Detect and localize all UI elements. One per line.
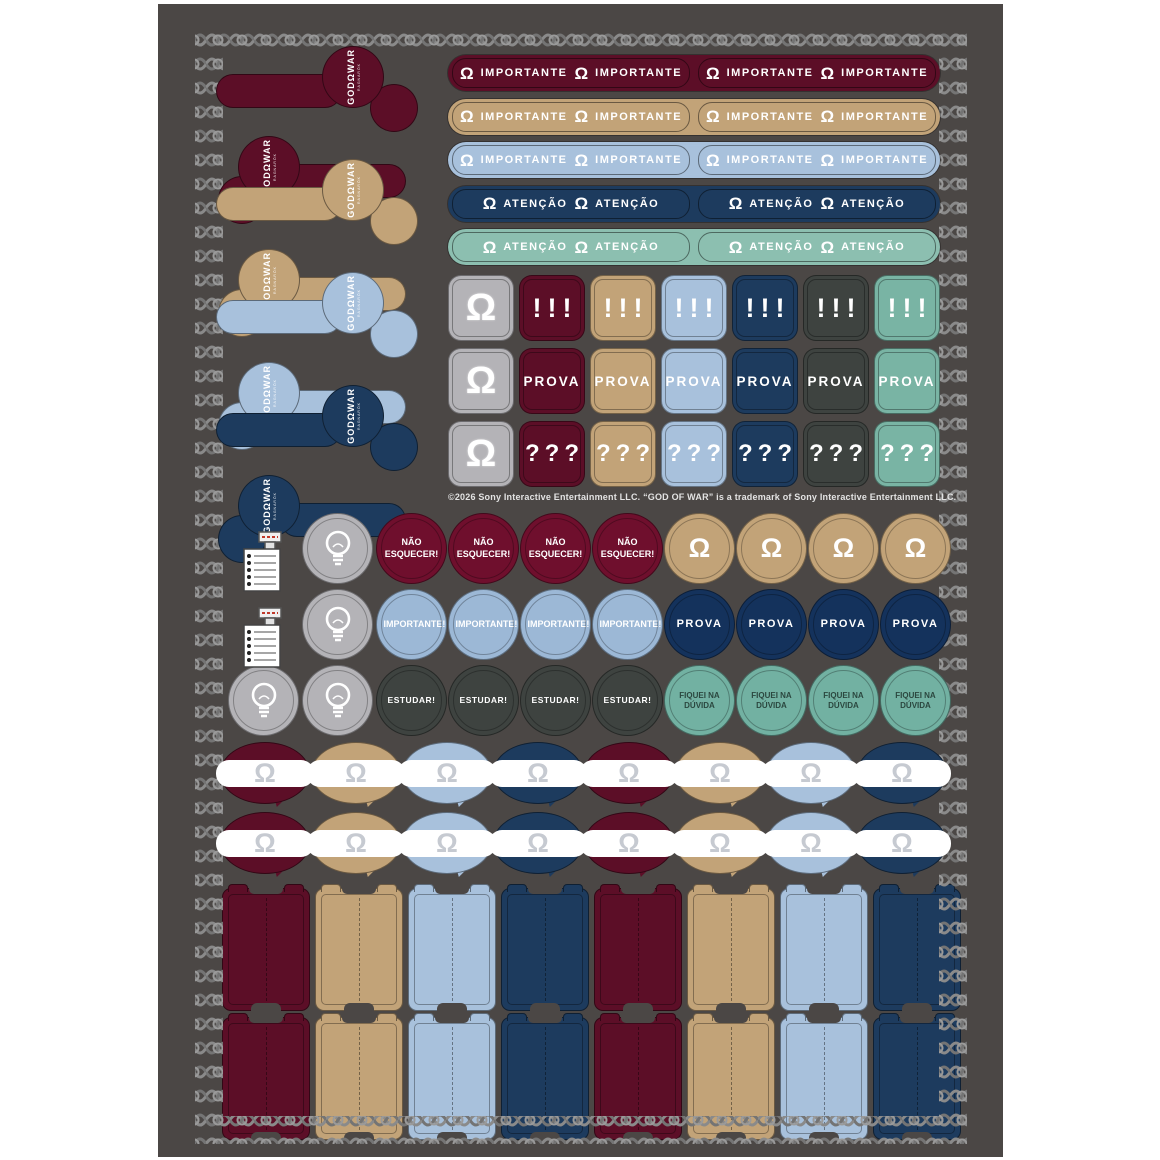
label-text: ATENÇÃO: [749, 241, 813, 253]
card-corner-tab: [377, 1013, 397, 1021]
round-sticker-importante: IMPORTANTE!: [448, 589, 519, 660]
round-sticker-label: NÃO ESQUECER!: [528, 537, 584, 560]
round-sticker-fiquei-na-duvida: FIQUEI NA DÚVIDA: [808, 665, 879, 736]
cover-card-sticker-dark_blue: [873, 1017, 961, 1140]
card-corner-tab: [470, 884, 490, 892]
card-corner-tab: [321, 1013, 341, 1021]
card-corner-tab: [842, 884, 862, 892]
speech-bubble-sticker-light_blue: Ω: [766, 812, 856, 874]
round-sticker-nao-esquecer: NÃO ESQUECER!: [376, 513, 447, 584]
bookmark-head-circle: GODΩWARRAGNARÖK: [322, 159, 384, 221]
round-sticker-nao-esquecer: NÃO ESQUECER!: [520, 513, 591, 584]
square-label: !!!: [882, 293, 933, 324]
card-corner-tab: [470, 1013, 490, 1021]
card-top-notch: [807, 888, 841, 894]
card-corner-tab: [228, 1013, 248, 1021]
card-bottom-notch: [251, 1132, 281, 1140]
speech-bubble-sticker-tan: Ω: [311, 812, 401, 874]
bookmark-head-circle: GODΩWARRAGNARÖK: [322, 385, 384, 447]
label-text: IMPORTANTE: [727, 111, 814, 123]
omega-watermark-icon: Ω: [527, 760, 549, 787]
omega-icon: Ω: [821, 65, 835, 82]
god-of-war-logo: GODΩWARRAGNARÖK: [346, 49, 361, 105]
round-sticker-label: FIQUEI NA DÚVIDA: [677, 691, 723, 711]
label-text: IMPORTANTE: [481, 154, 568, 166]
speech-bubble-sticker-light_blue: Ω: [402, 742, 492, 804]
square-label: PROVA: [523, 374, 580, 389]
omega-watermark-icon: Ω: [254, 830, 276, 857]
speech-bubble-sticker-maroon: Ω: [220, 812, 310, 874]
card-corner-tab: [414, 1013, 434, 1021]
label-strip-row-importante-maroon: ΩIMPORTANTEΩIMPORTANTEΩIMPORTANTEΩIMPORT…: [448, 55, 940, 91]
round-sticker-label: FIQUEI NA DÚVIDA: [821, 691, 867, 711]
cover-card-row: [222, 888, 961, 1011]
round-sticker-label: NÃO ESQUECER!: [384, 537, 440, 560]
card-corner-tab: [507, 1013, 527, 1021]
card-top-notch: [900, 1017, 934, 1023]
round-sticker-omega: Ω: [736, 513, 807, 584]
speech-bubble-sticker-tan: Ω: [675, 742, 765, 804]
label-text: IMPORTANTE: [595, 154, 682, 166]
round-sticker-prova: PROVA: [664, 589, 735, 660]
square-label: ???: [591, 440, 655, 468]
square-label: PROVA: [878, 374, 935, 389]
omega-square-sticker: Ω: [448, 348, 514, 414]
square-sticker-omega: ???: [874, 421, 940, 487]
copyright-line: ©2026 Sony Interactive Entertainment LLC…: [448, 492, 940, 502]
card-bottom-notch: [437, 1132, 467, 1140]
cover-card-sticker-light_blue: [408, 888, 496, 1011]
label-pill-atencao: ΩATENÇÃOΩATENÇÃO: [452, 189, 690, 219]
speech-bubble-sticker-tan: Ω: [311, 742, 401, 804]
speech-bubble-white-band: Ω: [489, 830, 587, 857]
square-label: PROVA: [736, 374, 793, 389]
speech-bubble-sticker-maroon: Ω: [584, 812, 674, 874]
speech-bubble-white-band: Ω: [580, 830, 678, 857]
card-corner-tab: [600, 884, 620, 892]
round-sticker-label: ESTUDAR!: [532, 695, 580, 706]
cover-card-sticker-tan: [687, 888, 775, 1011]
card-corner-tab: [414, 884, 434, 892]
ragnarok-logo-text: RAGNARÖK: [357, 402, 361, 430]
round-sticker-importante: IMPORTANTE!: [376, 589, 447, 660]
lightbulb-round-sticker: [228, 665, 299, 736]
god-of-war-logo-text: GODΩWAR: [346, 275, 356, 331]
speech-bubble-white-band: Ω: [580, 760, 678, 787]
square-sticker-prova: PROVA: [803, 348, 869, 414]
card-bottom-notch: [623, 1003, 653, 1011]
speech-bubble-white-band: Ω: [671, 760, 769, 787]
label-text: ATENÇÃO: [841, 241, 905, 253]
label-text: ATENÇÃO: [595, 241, 659, 253]
square-label: PROVA: [665, 374, 722, 389]
checklist-clip-icon: [242, 531, 296, 593]
square-label: !!!: [527, 293, 578, 324]
square-sticker-omega: ???: [803, 421, 869, 487]
bookmark-head-circle: GODΩWARRAGNARÖK: [238, 475, 300, 537]
speech-bubble-white-band: Ω: [853, 830, 951, 857]
card-corner-tab: [879, 1013, 899, 1021]
square-label: !!!: [598, 293, 649, 324]
square-sticker-prova: PROVA: [661, 348, 727, 414]
square-label: !!!: [811, 293, 862, 324]
card-corner-tab: [693, 884, 713, 892]
omega-watermark-icon: Ω: [436, 760, 458, 787]
label-pill-importante: ΩIMPORTANTEΩIMPORTANTE: [698, 102, 936, 132]
card-bottom-notch: [902, 1132, 932, 1140]
card-bottom-notch: [902, 1003, 932, 1011]
speech-bubble-sticker-light_blue: Ω: [402, 812, 492, 874]
omega-icon: Ω: [706, 152, 720, 169]
cover-card-sticker-maroon: [594, 888, 682, 1011]
square-sticker-omega: !!!: [732, 275, 798, 341]
god-of-war-logo: GODΩWARRAGNARÖK: [346, 388, 361, 444]
sticker-sheet: GODΩWARRAGNARÖKGODΩWARRAGNARÖKGODΩWARRAG…: [158, 4, 1003, 1157]
card-bottom-notch: [716, 1003, 746, 1011]
label-pill-importante: ΩIMPORTANTEΩIMPORTANTE: [452, 102, 690, 132]
square-label: ???: [662, 440, 726, 468]
round-sticker-label: PROVA: [749, 618, 795, 632]
lightbulb-round-sticker: [302, 589, 373, 660]
omega-watermark-icon: Ω: [709, 830, 731, 857]
label-text: ATENÇÃO: [503, 198, 567, 210]
ragnarok-logo-text: RAGNARÖK: [357, 63, 361, 91]
square-label: ???: [733, 440, 797, 468]
speech-bubble-white-band: Ω: [216, 830, 314, 857]
round-sticker-fiquei-na-duvida: FIQUEI NA DÚVIDA: [880, 665, 951, 736]
card-top-notch: [249, 888, 283, 894]
round-sticker-estudar: ESTUDAR!: [592, 665, 663, 736]
god-of-war-logo-text: GODΩWAR: [346, 388, 356, 444]
omega-icon: Ω: [466, 287, 496, 330]
square-sticker-prova: PROVA: [590, 348, 656, 414]
card-corner-tab: [656, 1013, 676, 1021]
omega-icon: Ω: [575, 152, 589, 169]
card-top-notch: [528, 1017, 562, 1023]
omega-watermark-icon: Ω: [254, 760, 276, 787]
cover-card-sticker-dark_blue: [501, 1017, 589, 1140]
card-top-notch: [621, 1017, 655, 1023]
square-sticker-prova: PROVA: [732, 348, 798, 414]
omega-icon: Ω: [729, 195, 743, 212]
lightbulb-icon: [319, 604, 357, 646]
cover-card-sticker-light_blue: [780, 888, 868, 1011]
card-bottom-notch: [437, 1003, 467, 1011]
square-sticker-prova: PROVA: [519, 348, 585, 414]
cover-card-sticker-dark_blue: [501, 888, 589, 1011]
speech-bubble-sticker-light_blue: Ω: [766, 742, 856, 804]
square-label: ???: [520, 440, 584, 468]
god-of-war-logo: GODΩWARRAGNARÖK: [346, 275, 361, 331]
speech-bubble-white-band: Ω: [398, 830, 496, 857]
speech-bubble-white-band: Ω: [853, 760, 951, 787]
omega-icon: Ω: [460, 65, 474, 82]
speech-bubble-sticker-dark_blue: Ω: [857, 812, 947, 874]
omega-watermark-icon: Ω: [345, 760, 367, 787]
card-top-notch: [528, 888, 562, 894]
symbol-square-stickers-grid: Ω!!!!!!!!!!!!!!!!!!ΩPROVAPROVAPROVAPROVA…: [448, 275, 940, 487]
omega-icon: Ω: [466, 433, 496, 476]
square-sticker-omega: ???: [519, 421, 585, 487]
omega-icon: Ω: [575, 65, 589, 82]
cover-card-sticker-maroon: [594, 1017, 682, 1140]
speech-bubble-white-band: Ω: [307, 830, 405, 857]
round-sticker-label: IMPORTANTE!: [528, 619, 584, 630]
card-top-notch: [621, 888, 655, 894]
square-label: ???: [804, 440, 868, 468]
lightbulb-icon: [319, 680, 357, 722]
checklist-clip-icon: [242, 607, 296, 669]
round-sticker-label: IMPORTANTE!: [384, 619, 440, 630]
square-sticker-prova: PROVA: [874, 348, 940, 414]
label-text: ATENÇÃO: [595, 198, 659, 210]
label-text: IMPORTANTE: [841, 154, 928, 166]
cover-card-sticker-maroon: [222, 888, 310, 1011]
square-sticker-omega: ???: [732, 421, 798, 487]
label-strip-row-importante-light_blue: ΩIMPORTANTEΩIMPORTANTEΩIMPORTANTEΩIMPORT…: [448, 142, 940, 178]
speech-bubble-white-band: Ω: [762, 760, 860, 787]
omega-icon: Ω: [706, 65, 720, 82]
label-text: IMPORTANTE: [841, 111, 928, 123]
omega-icon: Ω: [761, 533, 783, 564]
speech-bubble-sticker-tan: Ω: [675, 812, 765, 874]
speech-bubble-sticker-dark_blue: Ω: [857, 742, 947, 804]
square-sticker-omega: ???: [661, 421, 727, 487]
round-sticker-fiquei-na-duvida: FIQUEI NA DÚVIDA: [664, 665, 735, 736]
round-sticker-label: IMPORTANTE!: [600, 619, 656, 630]
round-sticker-label: ESTUDAR!: [388, 695, 436, 706]
label-pill-importante: ΩIMPORTANTEΩIMPORTANTE: [452, 58, 690, 88]
card-top-notch: [249, 1017, 283, 1023]
checklist-note-icon: [242, 607, 296, 674]
round-sticker-fiquei-na-duvida: FIQUEI NA DÚVIDA: [736, 665, 807, 736]
cover-card-row: [222, 1017, 961, 1140]
omega-watermark-icon: Ω: [709, 760, 731, 787]
square-label: PROVA: [594, 374, 651, 389]
round-sticker-label: NÃO ESQUECER!: [456, 537, 512, 560]
round-sticker-label: FIQUEI NA DÚVIDA: [893, 691, 939, 711]
round-sticker-prova: PROVA: [880, 589, 951, 660]
card-top-notch: [342, 888, 376, 894]
omega-watermark-icon: Ω: [800, 760, 822, 787]
round-sticker-omega: Ω: [664, 513, 735, 584]
label-text: IMPORTANTE: [481, 67, 568, 79]
ragnarok-logo-text: RAGNARÖK: [357, 176, 361, 204]
card-corner-tab: [600, 1013, 620, 1021]
card-top-notch: [807, 1017, 841, 1023]
card-bottom-notch: [623, 1132, 653, 1140]
card-corner-tab: [228, 884, 248, 892]
cover-card-stickers-area: [222, 888, 961, 1140]
cover-card-sticker-light_blue: [780, 1017, 868, 1140]
label-pill-atencao: ΩATENÇÃOΩATENÇÃO: [452, 232, 690, 262]
omega-watermark-icon: Ω: [800, 830, 822, 857]
speech-bubble-white-band: Ω: [398, 760, 496, 787]
square-sticker-omega: !!!: [661, 275, 727, 341]
lightbulb-icon: [245, 680, 283, 722]
omega-icon: Ω: [821, 108, 835, 125]
omega-icon: Ω: [821, 195, 835, 212]
card-top-notch: [714, 1017, 748, 1023]
card-bottom-notch: [809, 1003, 839, 1011]
square-sticker-omega: !!!: [803, 275, 869, 341]
label-text: IMPORTANTE: [727, 154, 814, 166]
speech-bubble-sticker-maroon: Ω: [220, 742, 310, 804]
square-label: !!!: [740, 293, 791, 324]
omega-icon: Ω: [575, 195, 589, 212]
omega-watermark-icon: Ω: [618, 830, 640, 857]
cover-card-sticker-maroon: [222, 1017, 310, 1140]
label-text: IMPORTANTE: [841, 67, 928, 79]
label-pill-importante: ΩIMPORTANTEΩIMPORTANTE: [452, 145, 690, 175]
omega-square-sticker: Ω: [448, 275, 514, 341]
square-label: ???: [875, 440, 939, 468]
card-corner-tab: [749, 884, 769, 892]
speech-bubble-sticker-dark_blue: Ω: [493, 812, 583, 874]
label-pill-importante: ΩIMPORTANTEΩIMPORTANTE: [698, 145, 936, 175]
card-top-notch: [435, 888, 469, 894]
cover-card-sticker-tan: [687, 1017, 775, 1140]
round-sticker-label: ESTUDAR!: [460, 695, 508, 706]
card-corner-tab: [935, 884, 955, 892]
round-sticker-label: IMPORTANTE!: [456, 619, 512, 630]
label-text: ATENÇÃO: [503, 241, 567, 253]
card-corner-tab: [656, 884, 676, 892]
god-of-war-logo-text: GODΩWAR: [262, 478, 272, 534]
round-sticker-label: ESTUDAR!: [604, 695, 652, 706]
round-sticker-estudar: ESTUDAR!: [520, 665, 591, 736]
speech-bubble-white-band: Ω: [762, 830, 860, 857]
lightbulb-round-sticker: [302, 513, 373, 584]
round-sticker-nao-esquecer: NÃO ESQUECER!: [448, 513, 519, 584]
speech-bubble-sticker-dark_blue: Ω: [493, 742, 583, 804]
lightbulb-round-sticker: [302, 665, 373, 736]
label-text: IMPORTANTE: [595, 67, 682, 79]
card-bottom-notch: [530, 1132, 560, 1140]
round-sticker-estudar: ESTUDAR!: [376, 665, 447, 736]
card-corner-tab: [842, 1013, 862, 1021]
label-pill-importante: ΩIMPORTANTEΩIMPORTANTE: [698, 58, 936, 88]
omega-icon: Ω: [821, 152, 835, 169]
god-of-war-logo-text: GODΩWAR: [346, 49, 356, 105]
speech-bubble-white-band: Ω: [671, 830, 769, 857]
card-corner-tab: [879, 884, 899, 892]
label-strip-row-importante-tan: ΩIMPORTANTEΩIMPORTANTEΩIMPORTANTEΩIMPORT…: [448, 99, 940, 135]
omega-icon: Ω: [460, 108, 474, 125]
card-bottom-notch: [716, 1132, 746, 1140]
lightbulb-icon: [319, 528, 357, 570]
label-text: IMPORTANTE: [481, 111, 568, 123]
god-of-war-logo: GODΩWARRAGNARÖK: [346, 162, 361, 218]
card-corner-tab: [563, 884, 583, 892]
card-corner-tab: [321, 884, 341, 892]
omega-watermark-icon: Ω: [345, 830, 367, 857]
round-sticker-label: PROVA: [677, 618, 723, 632]
label-pill-atencao: ΩATENÇÃOΩATENÇÃO: [698, 232, 936, 262]
card-corner-tab: [563, 1013, 583, 1021]
round-sticker-omega: Ω: [808, 513, 879, 584]
omega-icon: Ω: [905, 533, 927, 564]
round-sticker-label: PROVA: [893, 618, 939, 632]
omega-icon: Ω: [729, 239, 743, 256]
speech-bubble-white-band: Ω: [307, 760, 405, 787]
card-top-notch: [714, 888, 748, 894]
square-sticker-omega: !!!: [874, 275, 940, 341]
card-bottom-notch: [809, 1132, 839, 1140]
sticker-sheet-photo: GODΩWARRAGNARÖKGODΩWARRAGNARÖKGODΩWARRAG…: [0, 0, 1160, 1160]
label-text: IMPORTANTE: [595, 111, 682, 123]
round-sticker-label: PROVA: [821, 618, 867, 632]
omega-watermark-icon: Ω: [891, 760, 913, 787]
square-sticker-omega: ???: [590, 421, 656, 487]
speech-bubble-sticker-maroon: Ω: [584, 742, 674, 804]
card-bottom-notch: [530, 1003, 560, 1011]
card-bottom-notch: [344, 1132, 374, 1140]
omega-watermark-icon: Ω: [527, 830, 549, 857]
card-corner-tab: [935, 1013, 955, 1021]
round-sticker-importante: IMPORTANTE!: [520, 589, 591, 660]
cover-card-sticker-tan: [315, 888, 403, 1011]
card-top-notch: [900, 888, 934, 894]
cover-card-sticker-tan: [315, 1017, 403, 1140]
round-sticker-label: NÃO ESQUECER!: [600, 537, 656, 560]
label-text: ATENÇÃO: [749, 198, 813, 210]
omega-icon: Ω: [460, 152, 474, 169]
label-strip-row-atencao-teal: ΩATENÇÃOΩATENÇÃOΩATENÇÃOΩATENÇÃO: [448, 229, 940, 265]
card-top-notch: [342, 1017, 376, 1023]
omega-icon: Ω: [575, 108, 589, 125]
omega-icon: Ω: [483, 239, 497, 256]
omega-icon: Ω: [833, 533, 855, 564]
card-top-notch: [435, 1017, 469, 1023]
bookmark-head-circle: GODΩWARRAGNARÖK: [322, 46, 384, 108]
omega-watermark-icon: Ω: [618, 760, 640, 787]
square-label: !!!: [669, 293, 720, 324]
cover-card-sticker-light_blue: [408, 1017, 496, 1140]
checklist-note-icon: [242, 531, 296, 598]
round-sticker-prova: PROVA: [808, 589, 879, 660]
bookmark-stickers-area: GODΩWARRAGNARÖKGODΩWARRAGNARÖKGODΩWARRAG…: [216, 42, 448, 522]
cover-card-sticker-dark_blue: [873, 888, 961, 1011]
omega-icon: Ω: [821, 239, 835, 256]
card-corner-tab: [284, 884, 304, 892]
ragnarok-logo-text: RAGNARÖK: [357, 289, 361, 317]
omega-icon: Ω: [483, 195, 497, 212]
card-corner-tab: [786, 1013, 806, 1021]
round-sticker-nao-esquecer: NÃO ESQUECER!: [592, 513, 663, 584]
label-text: IMPORTANTE: [727, 67, 814, 79]
label-strip-row-atencao-dark_blue: ΩATENÇÃOΩATENÇÃOΩATENÇÃOΩATENÇÃO: [448, 186, 940, 222]
omega-watermark-icon: Ω: [436, 830, 458, 857]
god-of-war-logo-text: GODΩWAR: [346, 162, 356, 218]
round-sticker-prova: PROVA: [736, 589, 807, 660]
omega-icon: Ω: [466, 360, 496, 403]
round-sticker-importante: IMPORTANTE!: [592, 589, 663, 660]
square-label: PROVA: [807, 374, 864, 389]
card-bottom-notch: [251, 1003, 281, 1011]
speech-bubble-white-band: Ω: [216, 760, 314, 787]
omega-square-sticker: Ω: [448, 421, 514, 487]
omega-icon: Ω: [575, 239, 589, 256]
card-corner-tab: [377, 884, 397, 892]
square-sticker-omega: !!!: [519, 275, 585, 341]
card-bottom-notch: [344, 1003, 374, 1011]
ragnarok-logo-text: RAGNARÖK: [273, 492, 277, 520]
god-of-war-logo: GODΩWARRAGNARÖK: [262, 478, 277, 534]
omega-icon: Ω: [706, 108, 720, 125]
square-sticker-omega: !!!: [590, 275, 656, 341]
card-corner-tab: [749, 1013, 769, 1021]
